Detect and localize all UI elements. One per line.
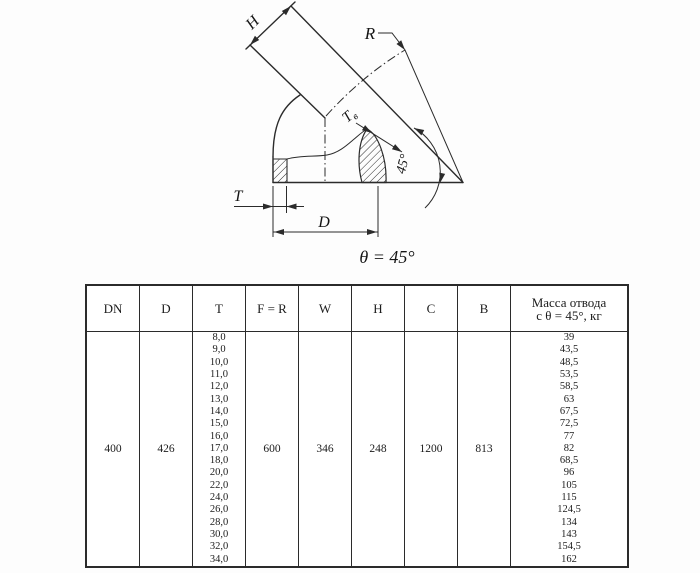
header-b: B	[458, 285, 511, 332]
page: H R Tв 45° T D θ = 45° DN D T F = R W H …	[0, 0, 700, 573]
value-line: 34,0	[193, 554, 245, 566]
t-values-list: 8,09,010,011,012,013,014,015,016,017,018…	[193, 332, 245, 566]
value-line: 22,0	[193, 480, 245, 492]
cell-w: 346	[299, 332, 352, 568]
value-line: 124,5	[511, 504, 627, 516]
label-d: D	[317, 214, 330, 231]
label-h: H	[242, 12, 264, 34]
cell-h: 248	[352, 332, 405, 568]
d-arrowhead-right	[367, 229, 377, 235]
label-r: R	[364, 24, 376, 43]
header-t: T	[193, 285, 246, 332]
elbow-drawing: H R Tв 45° T D θ = 45°	[0, 0, 700, 282]
value-line: 63	[511, 394, 627, 406]
t-arrowhead-left	[263, 204, 273, 210]
value-line: 14,0	[193, 406, 245, 418]
header-w: W	[299, 285, 352, 332]
header-f-r: F = R	[246, 285, 299, 332]
cell-t-values: 8,09,010,011,012,013,014,015,016,017,018…	[193, 332, 246, 568]
header-d: D	[140, 285, 193, 332]
value-line: 28,0	[193, 517, 245, 529]
value-line: 30,0	[193, 529, 245, 541]
value-line: 26,0	[193, 504, 245, 516]
header-c: C	[405, 285, 458, 332]
angle-dimension-arc	[414, 128, 440, 208]
value-line: 77	[511, 431, 627, 443]
value-line: 162	[511, 554, 627, 566]
t-arrowhead-right	[287, 204, 297, 210]
radius-arrowhead	[396, 40, 407, 52]
d-arrowhead-left	[274, 229, 284, 235]
value-line: 82	[511, 443, 627, 455]
cell-dn: 400	[86, 332, 140, 568]
value-line: 154,5	[511, 541, 627, 553]
value-line: 8,0	[193, 332, 245, 344]
table-data-row: 400 426 8,09,010,011,012,013,014,015,016…	[86, 332, 628, 568]
tb-arrowhead-2	[392, 144, 404, 154]
cell-f-r: 600	[246, 332, 299, 568]
value-line: 39	[511, 332, 627, 344]
value-line: 11,0	[193, 369, 245, 381]
drawing-caption: θ = 45°	[359, 247, 414, 267]
value-line: 20,0	[193, 467, 245, 479]
value-line: 58,5	[511, 381, 627, 393]
cell-c: 1200	[405, 332, 458, 568]
header-h: H	[352, 285, 405, 332]
value-line: 9,0	[193, 344, 245, 356]
t-dimension-lines	[234, 186, 304, 237]
left-wall-section-hatch	[273, 159, 287, 183]
value-line: 134	[511, 517, 627, 529]
header-mass-line2: с θ = 45°, кг	[511, 309, 627, 322]
cell-d: 426	[140, 332, 193, 568]
value-line: 68,5	[511, 455, 627, 467]
value-line: 17,0	[193, 443, 245, 455]
value-line: 12,0	[193, 381, 245, 393]
outer-back-arc	[273, 95, 300, 157]
value-line: 43,5	[511, 344, 627, 356]
table-header-row: DN D T F = R W H C B Масса отвода с θ = …	[86, 285, 628, 332]
label-t: T	[234, 188, 244, 205]
header-mass-line1: Масса отвода	[511, 296, 627, 309]
value-line: 67,5	[511, 406, 627, 418]
value-line: 53,5	[511, 369, 627, 381]
value-line: 15,0	[193, 418, 245, 430]
mass-values-list: 3943,548,553,558,56367,572,5778268,59610…	[511, 332, 627, 566]
cell-b: 813	[458, 332, 511, 568]
value-line: 18,0	[193, 455, 245, 467]
value-line: 96	[511, 467, 627, 479]
value-line: 24,0	[193, 492, 245, 504]
value-line: 16,0	[193, 431, 245, 443]
value-line: 10,0	[193, 357, 245, 369]
value-line: 32,0	[193, 541, 245, 553]
value-line: 48,5	[511, 357, 627, 369]
value-line: 72,5	[511, 418, 627, 430]
value-line: 105	[511, 480, 627, 492]
header-dn: DN	[86, 285, 140, 332]
header-mass: Масса отвода с θ = 45°, кг	[511, 285, 629, 332]
dimension-table: DN D T F = R W H C B Масса отвода с θ = …	[85, 284, 629, 568]
right-wall-section-hatch	[359, 129, 386, 183]
section-break-line	[287, 129, 367, 159]
value-line: 13,0	[193, 394, 245, 406]
label-angle-45: 45°	[394, 152, 414, 175]
value-line: 143	[511, 529, 627, 541]
cell-mass-values: 3943,548,553,558,56367,572,5778268,59610…	[511, 332, 629, 568]
value-line: 115	[511, 492, 627, 504]
